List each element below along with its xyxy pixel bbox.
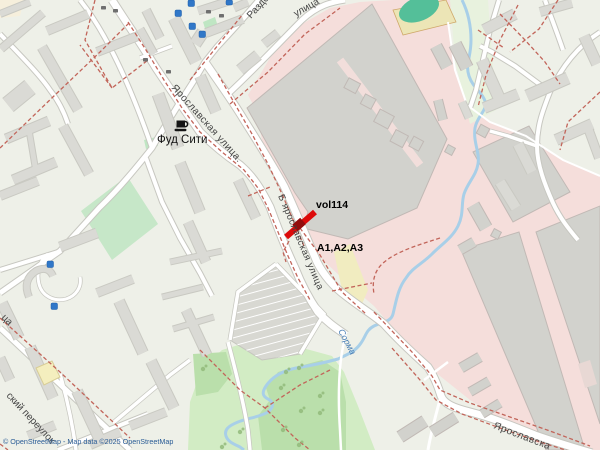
svg-text:© OpenStreetMap - Map data ©20: © OpenStreetMap - Map data ©2025 OpenStr… <box>3 437 173 446</box>
svg-text:Фуд Сити: Фуд Сити <box>157 134 207 146</box>
svg-text:A1,A2,A3: A1,A2,A3 <box>317 242 363 254</box>
svg-text:vol114: vol114 <box>316 199 348 211</box>
